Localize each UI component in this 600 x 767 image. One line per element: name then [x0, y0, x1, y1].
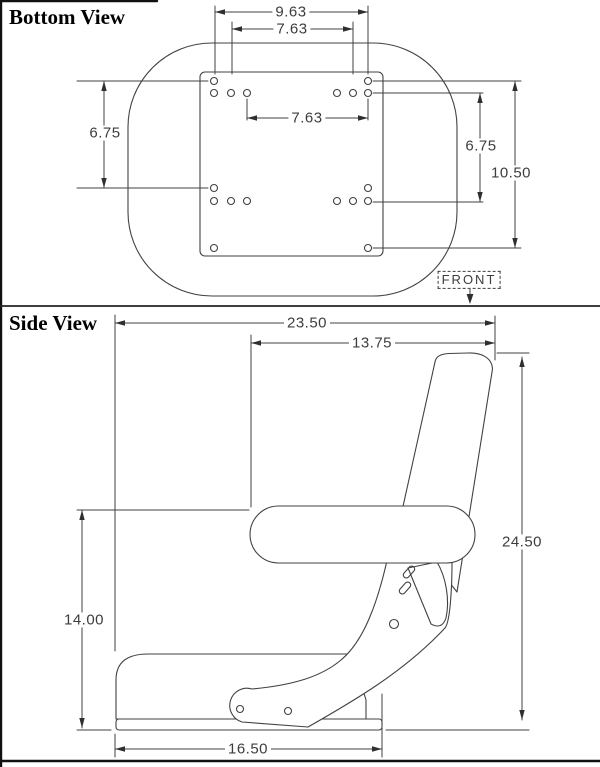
dim-overall-height: 24.50	[499, 535, 545, 550]
side-view-title: Side View	[9, 311, 97, 336]
bottom-view-drawing	[77, 6, 521, 304]
side-view-drawing	[77, 315, 529, 757]
mounting-plate	[200, 72, 383, 256]
front-direction-label: FRONT	[438, 271, 501, 289]
dim-inner-hole-width-mid: 7.63	[288, 111, 325, 126]
dim-overall-depth: 23.50	[284, 316, 330, 331]
dim-outer-hole-width: 9.63	[272, 5, 309, 20]
bottom-view-extension-lines	[77, 6, 521, 248]
dim-hole-height-right: 6.75	[462, 139, 499, 154]
dim-backrest-to-armrest-front: 13.75	[349, 336, 395, 351]
bottom-view-arrowheads	[101, 9, 517, 304]
dim-hole-height-total: 10.50	[488, 166, 534, 181]
dim-inner-hole-width-top: 7.63	[273, 22, 310, 37]
front-direction-arrow	[467, 294, 474, 304]
dim-hole-height-left: 6.75	[86, 126, 123, 141]
dim-base-length: 16.50	[225, 742, 271, 757]
mounting-holes	[211, 78, 372, 252]
technical-drawing-page: Bottom View Side View 9.63 7.63 7.63 6.7…	[0, 0, 600, 767]
armrest	[250, 506, 475, 563]
dim-armrest-height: 14.00	[61, 613, 107, 628]
bottom-view-title: Bottom View	[9, 5, 125, 30]
